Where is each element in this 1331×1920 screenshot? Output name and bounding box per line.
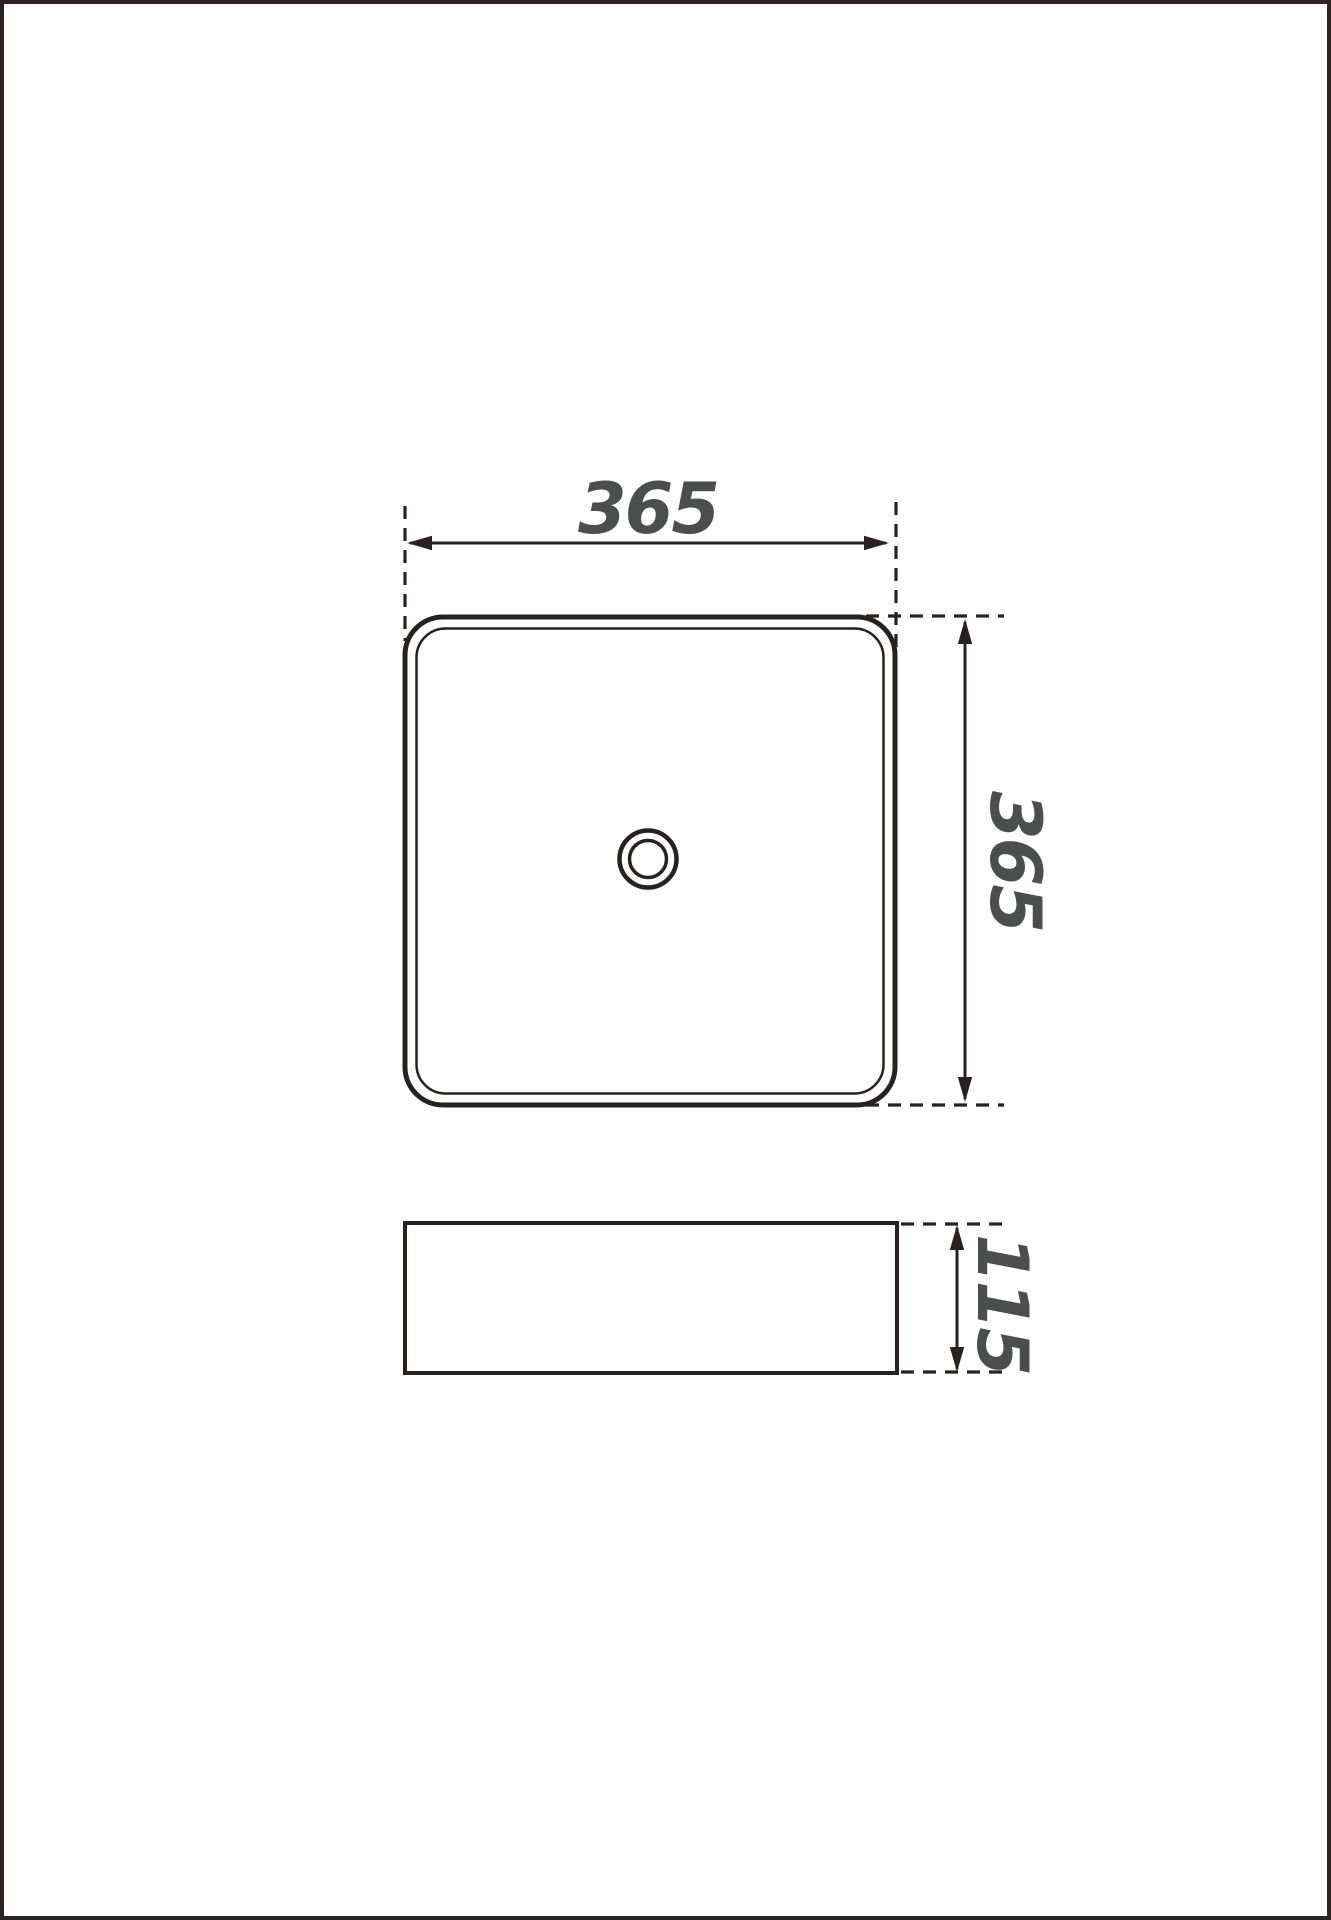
width-dimension-label: 365 [578,468,718,550]
drawing-sheet: 365 365 115 [0,0,1331,1920]
sheet-border [2,2,1329,1918]
depth-dimension-label: 365 [974,791,1056,931]
height-dimension-label: 115 [961,1234,1043,1374]
technical-drawing-svg: 365 365 115 [0,0,1331,1920]
